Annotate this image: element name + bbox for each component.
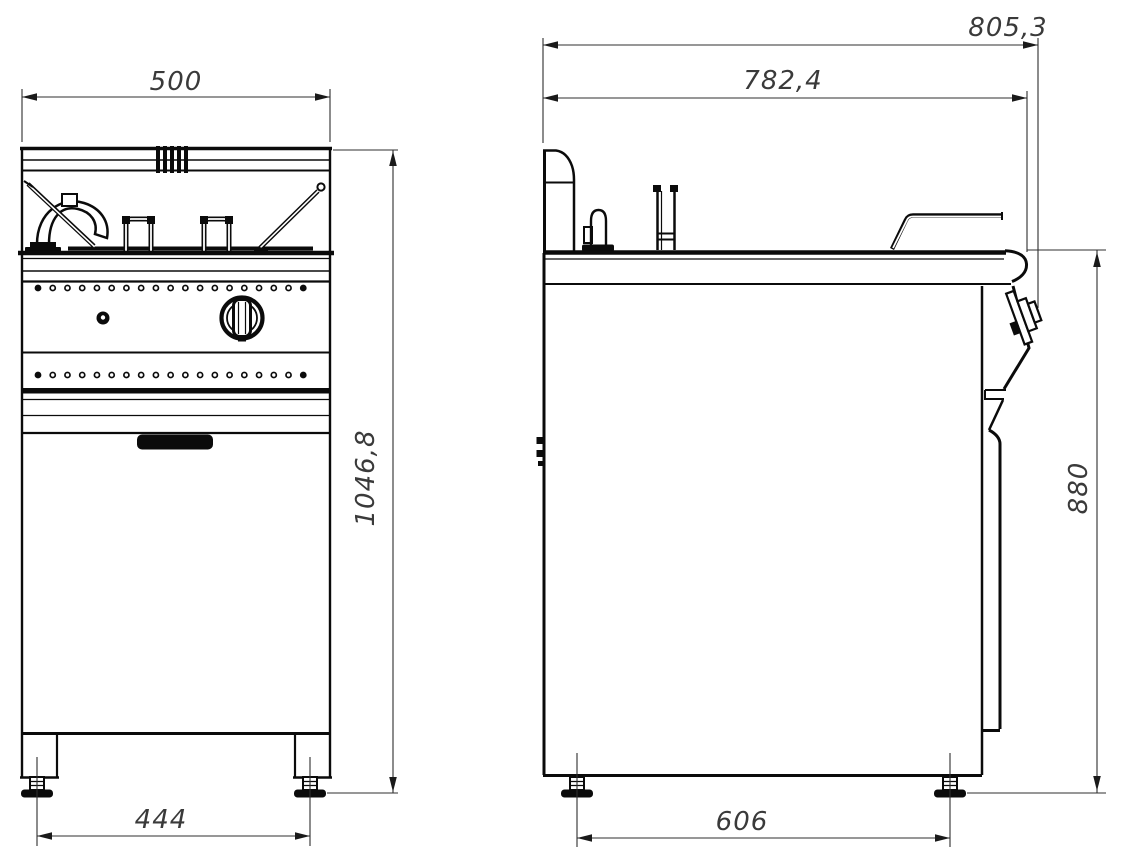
cabinet-sides xyxy=(22,148,330,777)
lower-rail xyxy=(22,375,330,433)
dim-label-feet-span: 606 xyxy=(716,807,769,837)
basket-lift-rod-side xyxy=(892,216,1002,250)
drain-pipe-flange-top xyxy=(30,242,56,247)
handle-cap-right xyxy=(670,185,678,192)
technical-drawing: 500 xyxy=(0,0,1126,862)
handle-crossbar xyxy=(657,234,675,240)
worktop-side xyxy=(543,251,1027,284)
handle-mount-left xyxy=(122,216,130,224)
indicator-light-center xyxy=(101,315,105,319)
rail-thick-band xyxy=(22,388,330,394)
basket-handle-side xyxy=(653,185,678,250)
front-view: 500 xyxy=(18,67,398,846)
control-knob xyxy=(222,298,263,341)
dimension-height-880: 880 xyxy=(967,250,1106,793)
dim-label-width: 500 xyxy=(150,67,203,97)
tank-area xyxy=(24,181,325,254)
knob-grip xyxy=(234,300,251,337)
worktop-edge xyxy=(18,253,334,282)
door-panel-edge xyxy=(989,430,1000,729)
dimension-feet-span-606: 606 xyxy=(577,753,950,847)
basket-lift-rod-side-highlight xyxy=(893,217,1001,249)
dimension-depth-805: 805,3 xyxy=(543,13,1048,308)
drawing-canvas: 500 xyxy=(0,0,1126,862)
arrowhead-left xyxy=(37,832,52,840)
arrowhead-right xyxy=(1012,94,1027,102)
handle-mount-right xyxy=(147,216,155,224)
cabinet-front xyxy=(20,148,332,778)
cabinet-side xyxy=(537,253,1001,776)
dimension-feet-span-444: 444 xyxy=(37,757,310,846)
knob-side xyxy=(1000,285,1048,346)
arrowhead-left xyxy=(543,94,558,102)
panel-lower-slope xyxy=(989,400,1003,430)
drain-pipe-joint xyxy=(62,194,77,206)
arrowhead-right xyxy=(315,93,330,101)
arrowhead-top xyxy=(1093,252,1101,267)
dim-label-feet-span: 444 xyxy=(135,805,188,835)
arrowhead-left xyxy=(577,834,592,842)
arrowhead-right xyxy=(295,832,310,840)
dim-label-height-worktop: 880 xyxy=(1064,462,1094,515)
reference-lines xyxy=(967,250,1106,793)
dim-label-height: 1046,8 xyxy=(351,430,381,527)
dimension-depth-782: 782,4 xyxy=(543,66,1027,252)
dim-label-depth-overall: 805,3 xyxy=(968,13,1047,43)
lift-rod-right-highlight xyxy=(261,190,319,247)
worktop-items-side xyxy=(582,185,1002,252)
arrowhead-bottom xyxy=(1093,776,1101,791)
handle-mount-right xyxy=(225,216,233,224)
arrowhead-bottom xyxy=(389,777,397,792)
rear-tab-2 xyxy=(537,450,544,457)
side-view: 805,3 782,4 xyxy=(537,13,1107,847)
top-rail xyxy=(20,146,332,173)
handle-posts xyxy=(658,188,675,250)
handle-mount-left xyxy=(200,216,208,224)
backsplash-profile xyxy=(543,150,574,253)
dimension-width-500: 500 xyxy=(22,67,330,142)
backsplash-top-curve xyxy=(543,151,574,254)
arrowhead-right xyxy=(935,834,950,842)
basket-handle-left xyxy=(122,216,155,251)
basket-handle-right xyxy=(200,216,233,251)
door-handle xyxy=(137,435,213,450)
arrowhead-top xyxy=(389,151,397,166)
handle-cap-left xyxy=(653,185,661,192)
valve-knob-side xyxy=(591,210,606,250)
panel-bracket xyxy=(985,390,1006,399)
arrowhead-left xyxy=(22,93,37,101)
lift-rod-hook xyxy=(317,183,324,190)
worktop-bullnose xyxy=(1005,251,1027,282)
rear-tab-3 xyxy=(538,461,543,466)
rear-tab-1 xyxy=(537,437,544,444)
arrowhead-left xyxy=(543,41,558,49)
dim-label-depth-body: 782,4 xyxy=(743,66,822,96)
control-panel xyxy=(22,288,330,353)
dimension-height-1046: 1046,8 xyxy=(327,150,398,793)
